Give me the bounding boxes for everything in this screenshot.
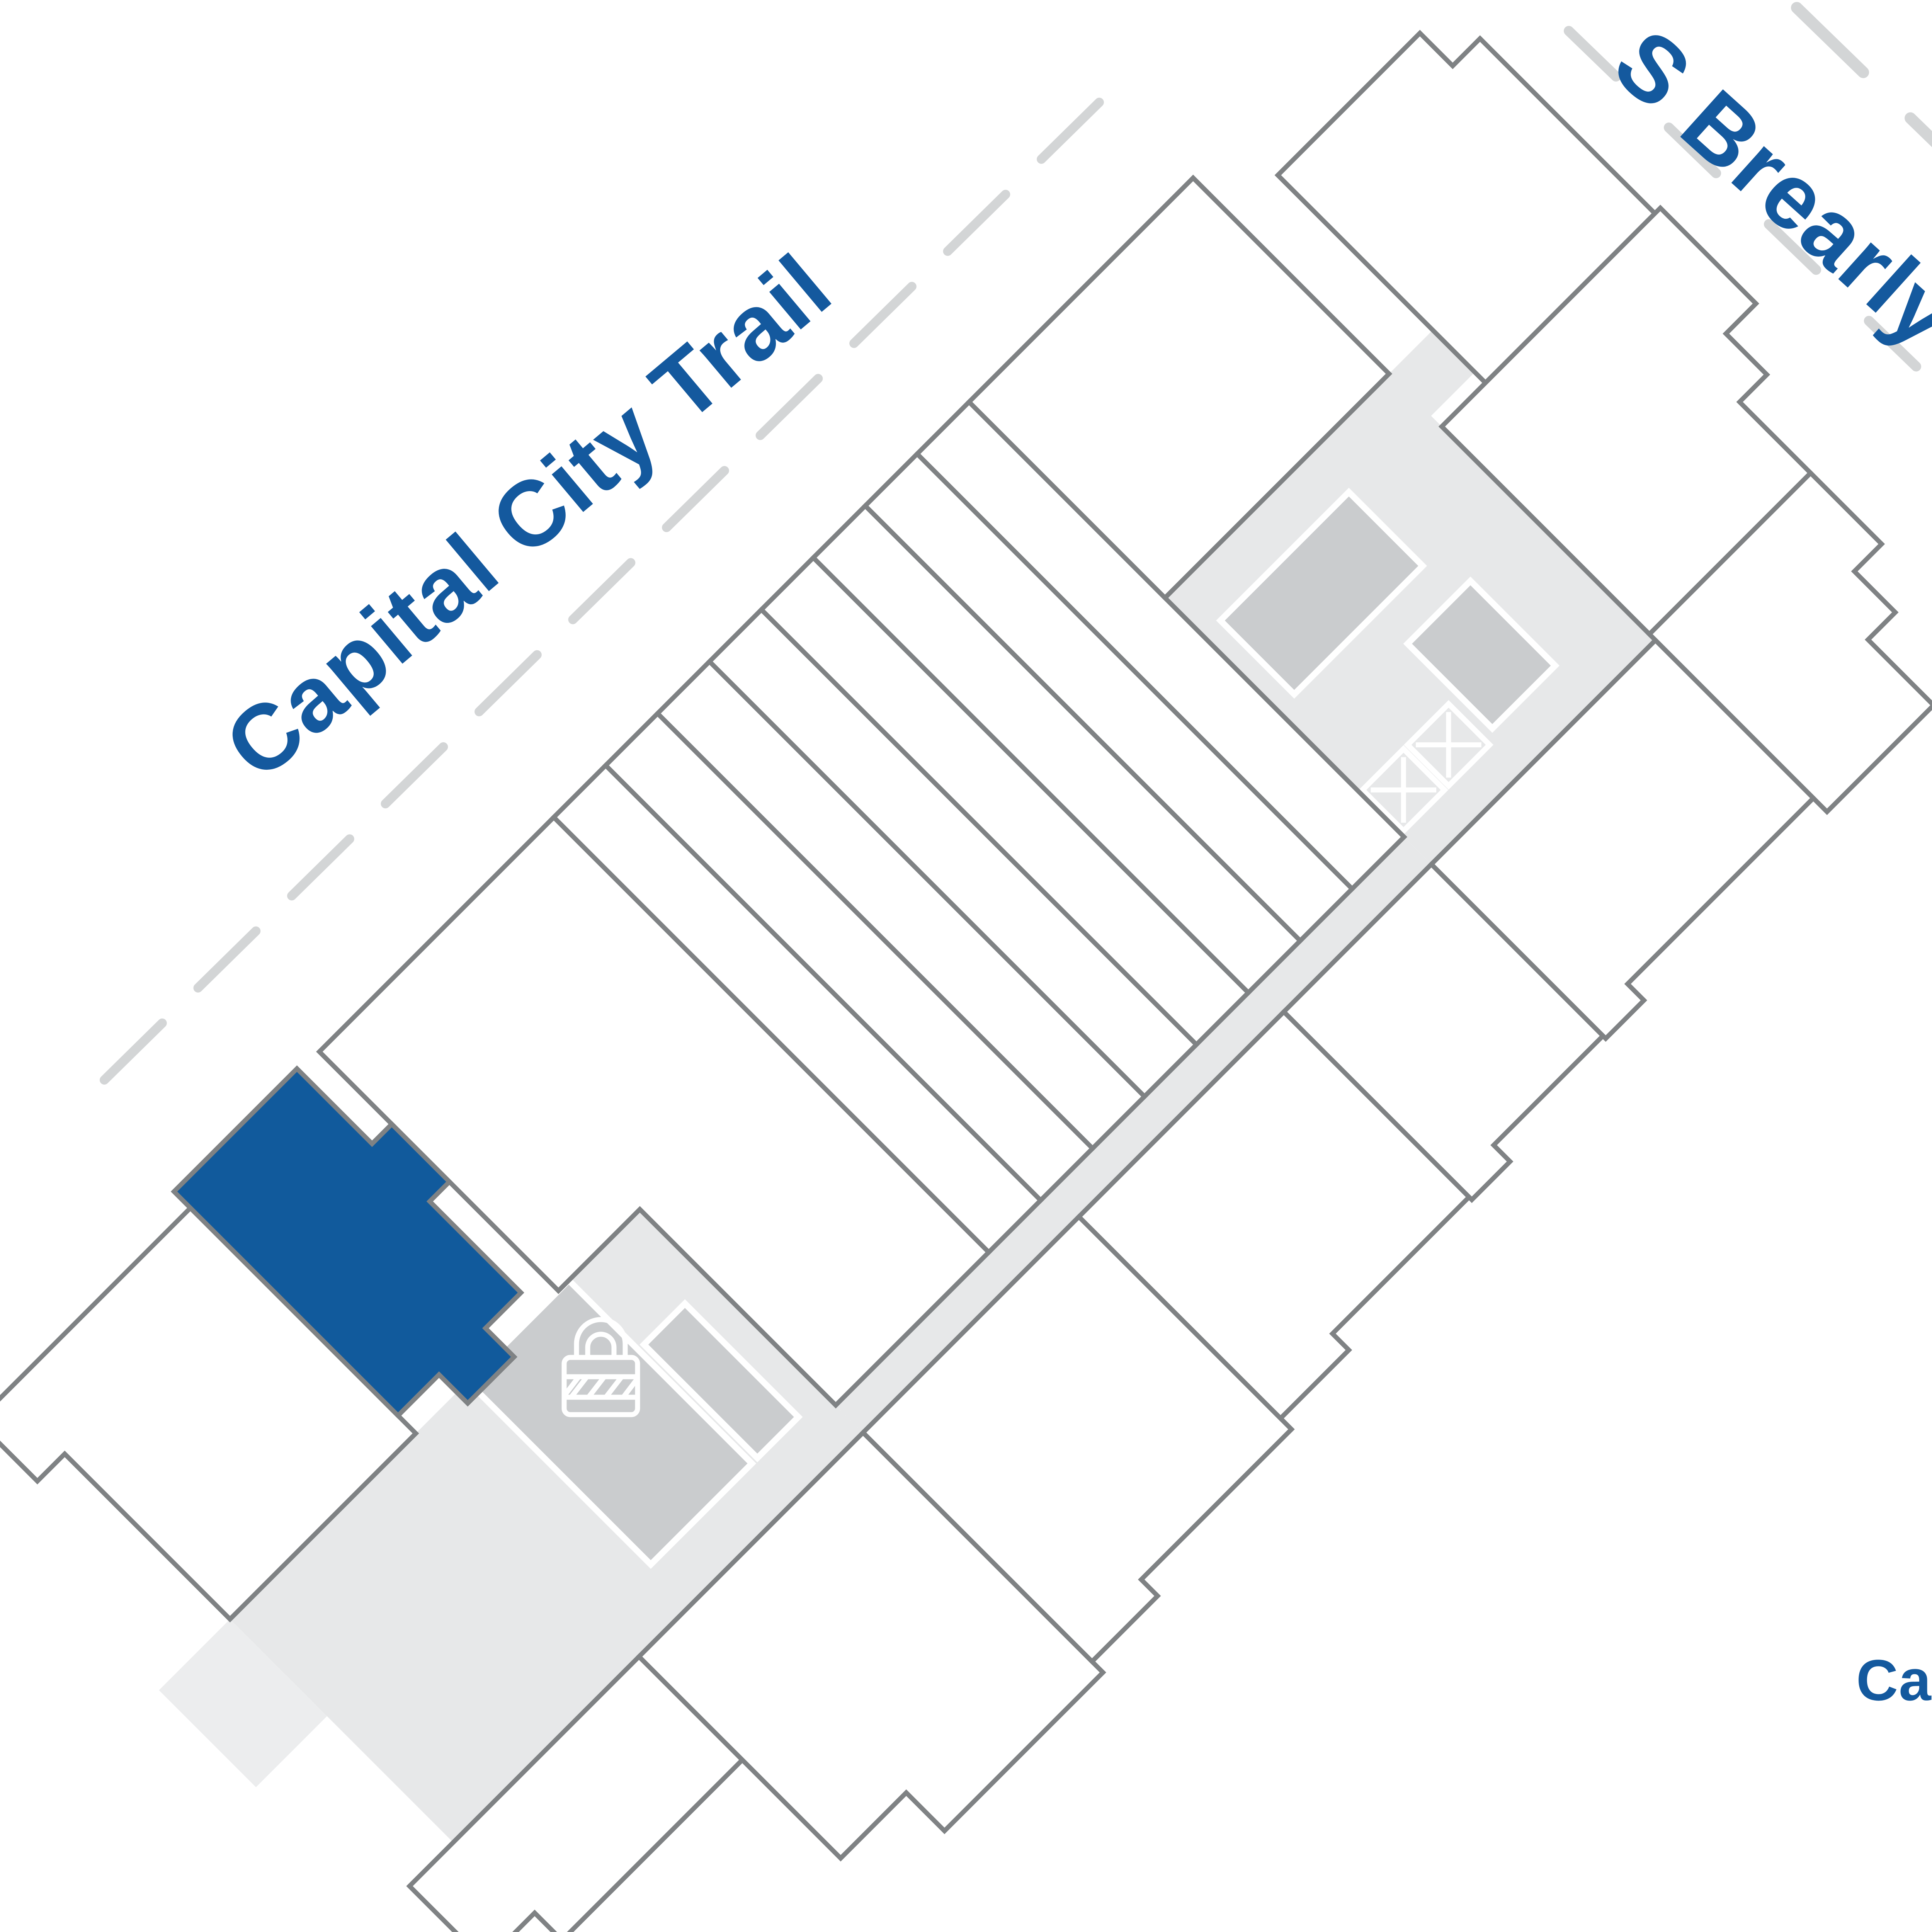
site-plan-canvas: Capital City Trail S Brearly Street Capi… [0,0,1932,1932]
site-plan-page: Capital City Trail S Brearly Street Capi… [0,0,1932,1932]
landmark-label: Capitol [1856,1648,1932,1713]
building-plan [0,0,1932,1932]
